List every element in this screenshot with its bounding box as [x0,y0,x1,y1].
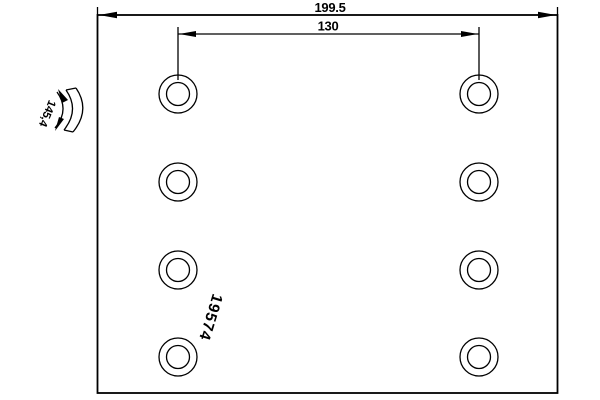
arc-profile-bottom-cap [64,130,73,132]
arc-profile: 145,4 [36,88,83,132]
drawing-canvas: 199.5 130 [0,0,600,400]
rivet-hole-r1c1 [159,75,197,113]
arrow-right-icon [538,12,556,18]
rivet-hole-r2c2 [460,163,498,201]
arc-profile-outer [73,88,83,132]
dim-hole-spacing: 130 [178,19,479,81]
arrow-right-icon [461,31,478,37]
brake-lining-plate [98,15,558,393]
rivet-hole-r2c1 [159,163,197,201]
dim-label-hole-spacing: 130 [318,19,339,34]
arc-profile-top-cap [66,88,76,90]
rivet-hole-r3c1 [159,251,197,289]
rivet-hole-r4c2 [460,338,498,376]
rivet-hole-r1c2 [460,75,498,113]
arc-dimension-label: 145,4 [36,98,58,129]
dim-label-overall-width: 199.5 [314,0,345,15]
technical-drawing: 199.5 130 [0,0,600,400]
arrow-left-icon [179,31,196,37]
part-number-label: 19574 [195,292,225,343]
rivet-hole-r3c2 [460,251,498,289]
arrow-left-icon [99,12,117,18]
arc-profile-inner [64,90,73,130]
rivet-hole-r4c1 [159,338,197,376]
arc-arrow-bottom-icon [55,117,64,131]
